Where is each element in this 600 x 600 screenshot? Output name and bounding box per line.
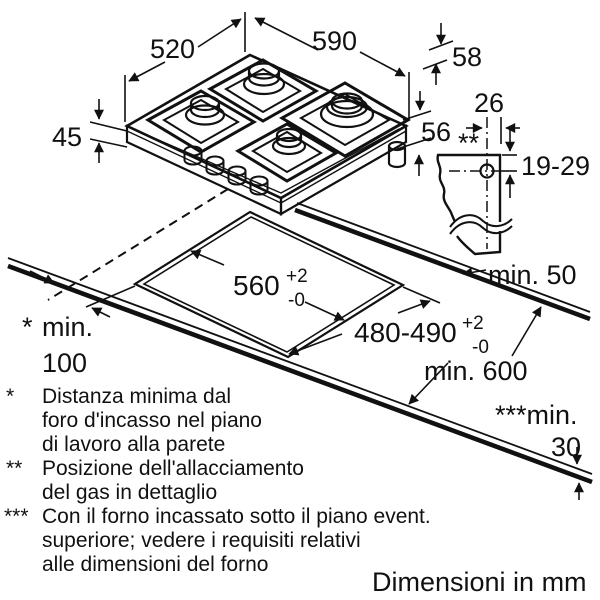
rear-clearance-label: min. 50	[488, 260, 577, 290]
dim-600-arrow-rear	[512, 307, 541, 356]
wall-distance-value: 100	[42, 348, 87, 378]
cutout-width-tol-down: -0	[288, 290, 305, 311]
worktop-thickness-label: ***min.	[495, 400, 578, 430]
footnote-line: Con il forno incassato sotto il piano ev…	[42, 505, 431, 528]
gas-offset-label: 26	[474, 88, 504, 118]
detail-body-lower	[457, 231, 500, 254]
gas-pipe	[389, 142, 405, 167]
hob-connection-height-label: 56	[421, 117, 451, 147]
hob-depth-label: 520	[150, 34, 195, 64]
units-note: Dimensioni in mm	[372, 567, 587, 597]
dim-590-arrow-a	[255, 18, 318, 50]
footnote-line: del gas in dettaglio	[42, 481, 217, 504]
hob-right-lip	[281, 131, 406, 203]
gas-position-marker: **	[458, 128, 480, 158]
footnotes: * Distanza minima dal foro d'incasso nel…	[4, 385, 431, 576]
dim-480-arrow-up	[398, 301, 430, 313]
hob-grate-height-label: 58	[452, 42, 482, 72]
gas-connection-detail: 26 ** 19-29 min. 50	[438, 88, 590, 290]
footnote-marker: **	[6, 457, 22, 480]
cutout-depth-tol-up: +2	[462, 313, 484, 334]
hob-drawing	[127, 55, 408, 214]
footnote-line: superiore; vedere i requisiti relativi	[42, 529, 361, 552]
dim-480-arrow-down	[289, 334, 342, 354]
dim-520-arrow-b	[129, 62, 165, 81]
dim-520-arrow-a	[198, 19, 241, 47]
cutout-width-tol-up: +2	[286, 266, 308, 287]
burner-back	[244, 64, 284, 95]
cutout-width-label: 560	[233, 270, 280, 301]
wall-distance-marker: *	[22, 312, 33, 342]
cutout-depth-label: 480-490	[354, 317, 457, 348]
cutout-extension-right	[403, 287, 440, 303]
ext-45-bottom	[90, 139, 127, 147]
footnote-marker: ***	[4, 505, 29, 528]
gas-range-label: 19-29	[521, 151, 590, 181]
dim-100-arrow-b	[92, 308, 110, 317]
worktop-min-depth-label: min. 600	[424, 356, 528, 386]
dim-560-arrow-left	[191, 251, 224, 265]
ext-58-bottom	[423, 60, 447, 69]
cutout-depth-tol-down: -0	[472, 337, 489, 358]
footnote-line: foro d'incasso nel piano	[42, 409, 262, 432]
dim-590-arrow-b	[360, 52, 405, 76]
hob-height-label: 45	[52, 122, 82, 152]
footnote-line: di lavoro alla parete	[42, 433, 225, 456]
footnote-line: Distanza minima dal	[42, 385, 231, 408]
hob-top-surface	[127, 55, 406, 198]
installation-diagram: 560 +2 -0 480-490 +2 -0 min. 600 * min. …	[0, 0, 600, 600]
dim-560-arrow-right	[305, 302, 344, 320]
hob-width-label: 590	[312, 26, 357, 56]
pan-support-front	[238, 124, 336, 181]
footnote-marker: *	[6, 385, 14, 408]
burner-left	[186, 96, 224, 125]
ext-45-top	[90, 122, 127, 131]
footnote-line: alle dimensioni del forno	[42, 553, 268, 576]
worktop-rear-edge-top	[297, 203, 590, 312]
footnote-line: Posizione dell'allacciamento	[42, 457, 304, 480]
wall-distance-label: min.	[42, 312, 93, 342]
